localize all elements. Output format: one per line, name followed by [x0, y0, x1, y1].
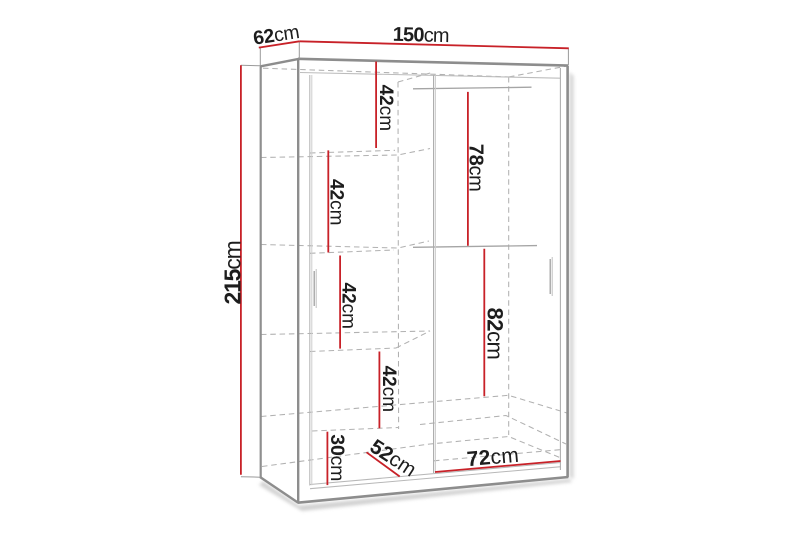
- svg-text:215cm: 215cm: [219, 241, 245, 304]
- svg-text:150cm: 150cm: [392, 24, 449, 47]
- svg-text:42cm: 42cm: [378, 366, 399, 412]
- svg-text:30cm: 30cm: [326, 434, 348, 481]
- svg-text:82cm: 82cm: [483, 308, 508, 360]
- svg-text:42cm: 42cm: [326, 179, 347, 225]
- svg-text:78cm: 78cm: [464, 144, 486, 192]
- svg-text:42cm: 42cm: [338, 283, 359, 329]
- svg-text:62cm: 62cm: [252, 21, 301, 50]
- svg-text:42cm: 42cm: [375, 85, 396, 131]
- svg-text:72cm: 72cm: [466, 444, 520, 471]
